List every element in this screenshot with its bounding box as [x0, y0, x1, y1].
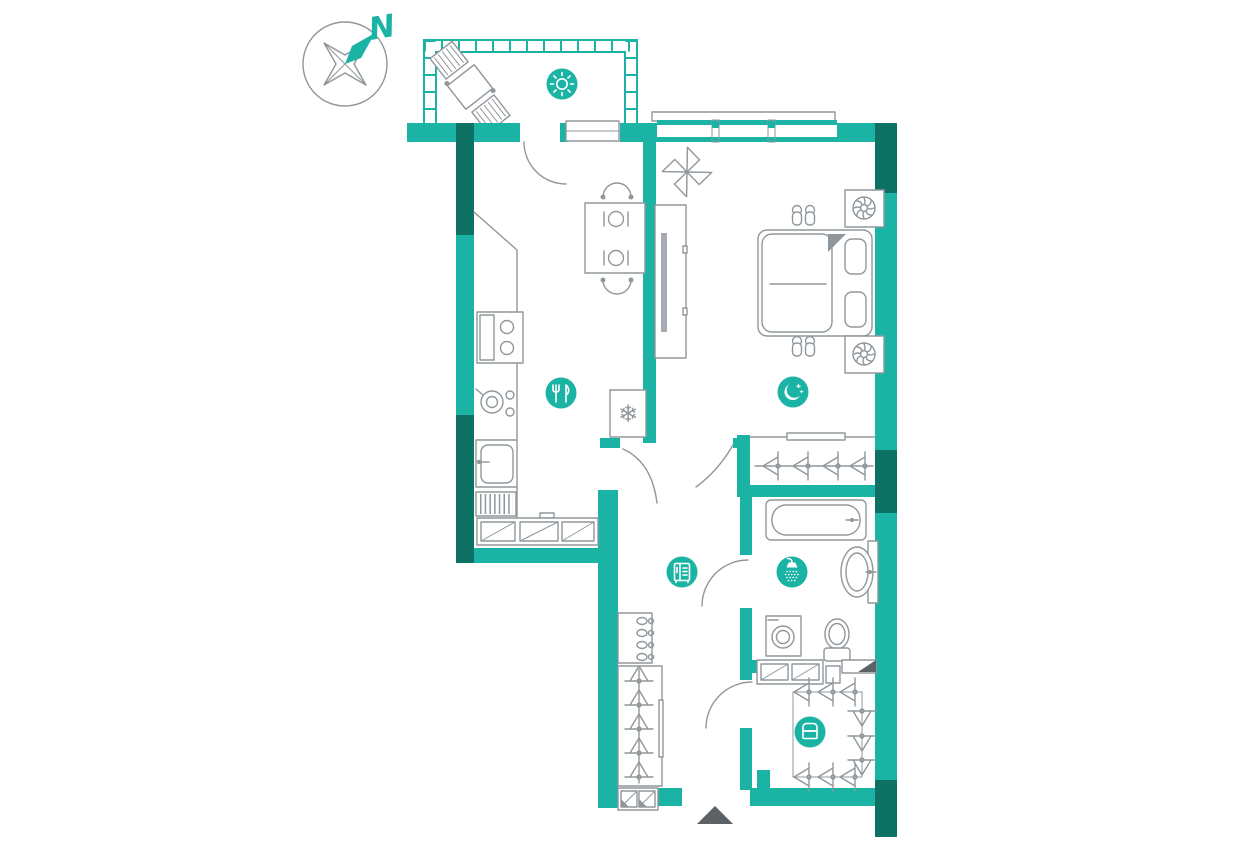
kitchen-sink [476, 440, 517, 487]
dining-table [585, 203, 645, 273]
storage-badge [795, 717, 826, 748]
balcony-table-and-chairs [426, 39, 513, 136]
kitchen-dining-room: ❄ [474, 183, 646, 545]
bedroom-door-arc [696, 445, 733, 487]
washing-machine [766, 616, 801, 656]
toilet [824, 619, 850, 661]
dining-chair-top [601, 183, 634, 200]
bedroom-window [652, 112, 837, 142]
kitchen-badge [546, 378, 577, 409]
bedroom-badge [778, 377, 809, 408]
closet-door-arc [706, 682, 752, 728]
slippers-bottom [793, 337, 815, 357]
floor-plan-page: N [0, 0, 1245, 845]
entrance-arrow-icon [697, 806, 733, 824]
ceiling-fan-sketch [658, 143, 717, 202]
kitchen-bench [477, 513, 598, 545]
stove [477, 312, 523, 363]
pot [476, 389, 514, 416]
bathroom-badge [777, 557, 808, 588]
hallway-badge [667, 557, 698, 588]
shoe-bench [618, 788, 658, 810]
double-bed [758, 230, 872, 336]
hallway-wardrobe [618, 666, 663, 786]
balcony-side-window [566, 121, 619, 141]
snowflake-icon: ❄ [618, 400, 638, 428]
washbasin [841, 541, 878, 603]
floor-plan-canvas: N [0, 0, 1245, 845]
pillow [845, 292, 866, 327]
balcony-door-arc [524, 142, 566, 184]
bedroom [655, 143, 884, 373]
balcony-badge [547, 69, 578, 100]
compass-north-label: N [366, 8, 398, 48]
bathroom-door-arc [702, 560, 748, 606]
built-in-closet [750, 433, 875, 480]
ventilation-unit-bottom [845, 336, 884, 373]
hallway [618, 613, 663, 810]
shoe-cabinet [618, 613, 654, 663]
bedroom-wardrobe [655, 205, 687, 358]
compass-rose: N [303, 8, 398, 106]
dish-rack [476, 492, 516, 516]
fridge: ❄ [610, 390, 646, 437]
kitchen-door-arc [623, 449, 657, 503]
dining-chair-bottom [601, 278, 634, 295]
bathtub [766, 500, 866, 540]
pillow [845, 239, 866, 274]
ventilation-unit-top [845, 190, 884, 227]
slippers-top [793, 206, 815, 226]
bathroom [757, 500, 878, 684]
vanity-shelves [757, 660, 876, 684]
